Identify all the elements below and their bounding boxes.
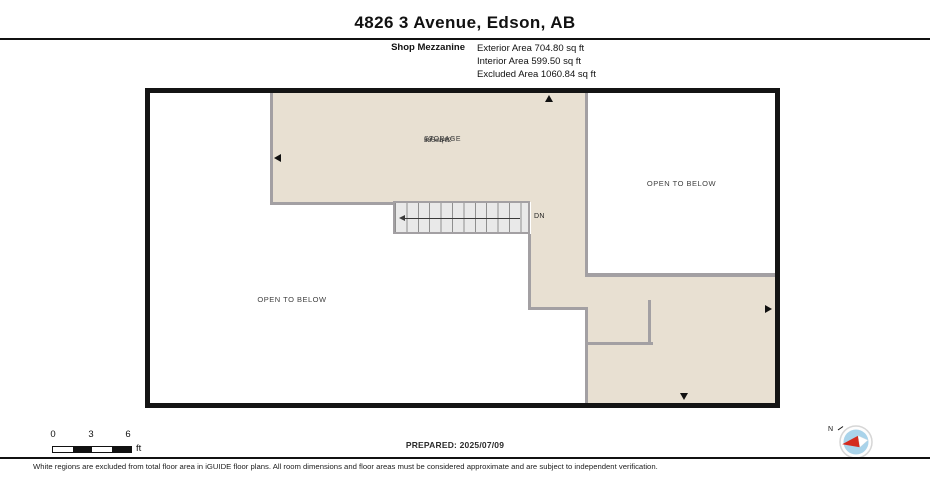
excluded-area: Excluded Area 1060.84 sq ft <box>477 68 596 81</box>
scale-tick-6: 6 <box>122 429 134 440</box>
header-divider <box>0 38 930 40</box>
floor-name: Shop Mezzanine <box>250 42 465 53</box>
footer-divider <box>0 457 930 459</box>
open-to-below-right-region: OPEN TO BELOW <box>588 93 775 273</box>
open-to-below-left-label: OPEN TO BELOW <box>212 295 372 304</box>
stair-down-label: DN <box>534 213 545 220</box>
wall-open-below-bottom <box>585 273 775 277</box>
open-to-below-right-label: OPEN TO BELOW <box>647 179 716 188</box>
scale-unit-label: ft <box>136 443 141 454</box>
wall-storage-left <box>270 93 273 205</box>
scale-segment <box>73 447 93 452</box>
scale-segment <box>92 447 112 452</box>
exterior-area: Exterior Area 704.80 sq ft <box>477 42 596 55</box>
wall-bottom-left <box>585 310 588 403</box>
wall-interior-horizontal <box>588 342 653 345</box>
floor-region-bottom-right <box>588 310 775 403</box>
interior-area: Interior Area 599.50 sq ft <box>477 55 596 68</box>
wall-interior-vertical <box>648 300 651 345</box>
compass-north-label: N <box>828 426 833 433</box>
entry-arrow-left-icon <box>274 154 281 162</box>
scale-bar <box>52 446 132 453</box>
storage-room-area: 535 sq ft <box>424 137 449 144</box>
wall-step <box>528 307 588 310</box>
entry-arrow-up-icon <box>545 95 553 102</box>
entry-arrow-down-icon <box>680 393 688 400</box>
prepared-date: PREPARED: 2025/07/09 <box>355 440 555 450</box>
staircase <box>393 201 530 234</box>
disclaimer-text: White regions are excluded from total fl… <box>33 462 658 471</box>
floorplan-drawing: DN STORAGE 39' x 34'2" 535 sq ft OPEN TO… <box>145 88 780 408</box>
floor-region-storage-top <box>273 93 585 202</box>
floorplan-page: 4826 3 Avenue, Edson, AB Shop Mezzanine … <box>0 0 930 500</box>
area-summary: Exterior Area 704.80 sq ft Interior Area… <box>477 42 596 81</box>
floor-region-mid-strip <box>531 277 775 310</box>
scale-tick-0: 0 <box>47 429 59 440</box>
entry-arrow-right-icon <box>765 305 772 313</box>
stair-direction-arrowhead-icon <box>399 215 405 221</box>
wall-storage-bottom <box>270 202 393 205</box>
page-title: 4826 3 Avenue, Edson, AB <box>0 13 930 33</box>
scale-segment <box>112 447 132 452</box>
stair-direction-line <box>405 218 520 219</box>
wall-corridor-left <box>528 234 531 310</box>
scale-tick-3: 3 <box>85 429 97 440</box>
scale-segment <box>53 447 73 452</box>
